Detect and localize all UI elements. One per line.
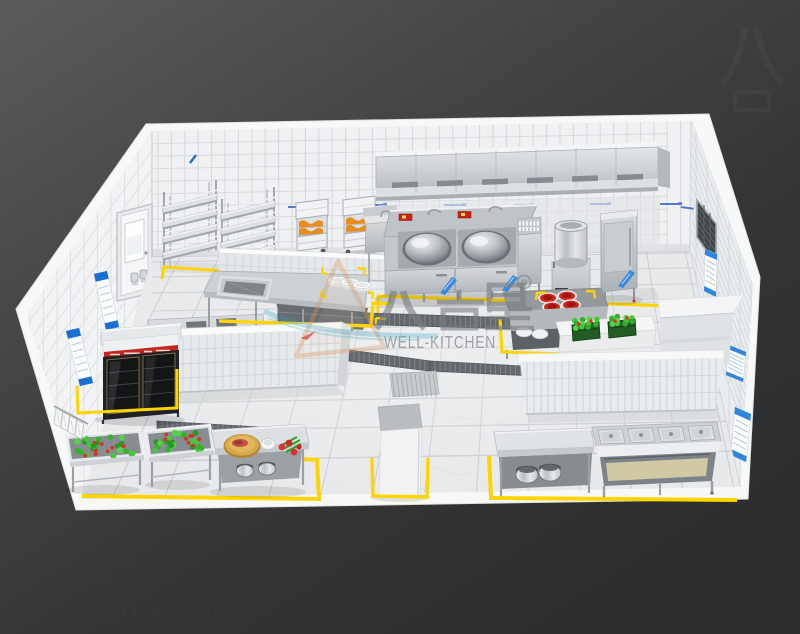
- svg-text:WELL-KITCHEN: WELL-KITCHEN: [384, 332, 496, 352]
- svg-text:R: R: [521, 278, 528, 288]
- svg-text:WELL-KITCHEN: WELL-KITCHEN: [90, 603, 241, 622]
